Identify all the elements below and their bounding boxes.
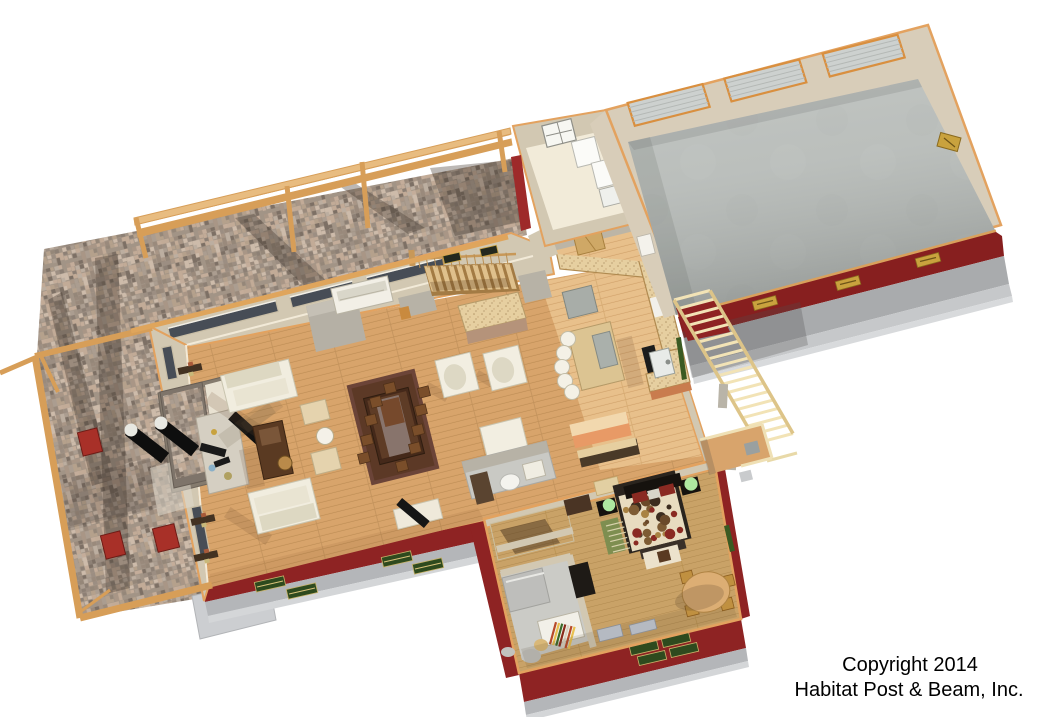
svg-text:Habitat Post & Beam, Inc.: Habitat Post & Beam, Inc.: [795, 679, 1024, 701]
svg-text:Copyright 2014: Copyright 2014: [842, 654, 978, 676]
